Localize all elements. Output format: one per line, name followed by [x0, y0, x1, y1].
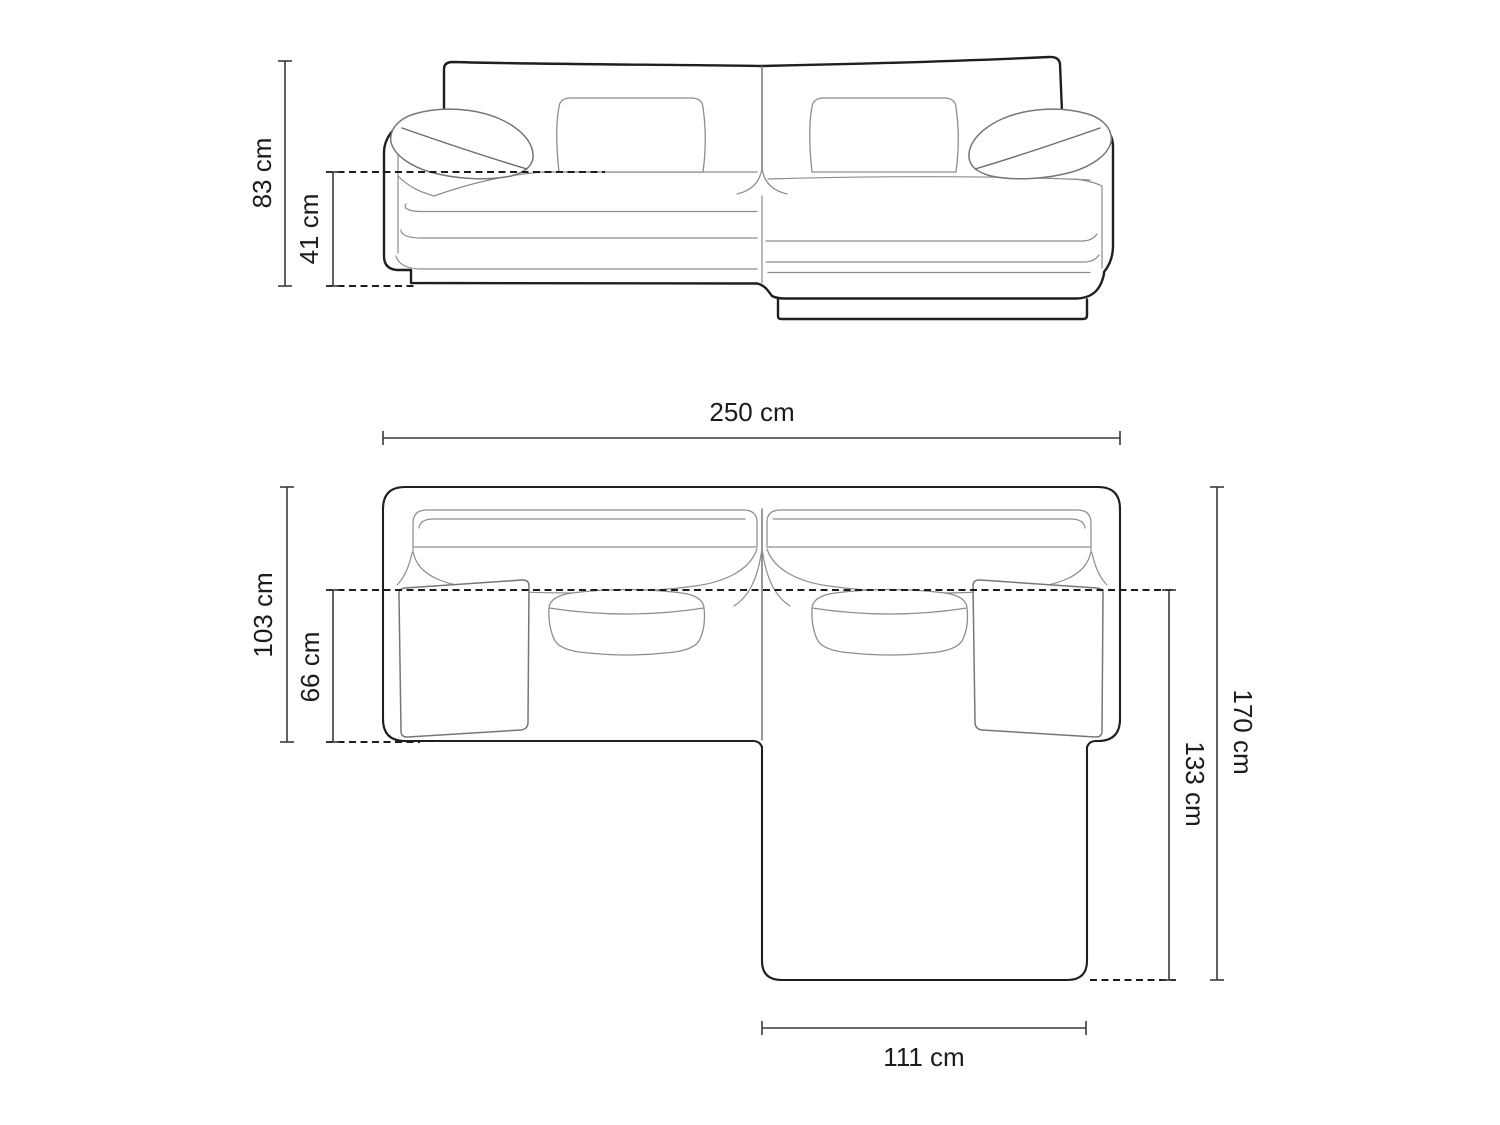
dimension-chaise-depth: 133 cm [1162, 590, 1210, 980]
seat-height-label: 41 cm [294, 194, 324, 265]
top-armrest-pillow-left [399, 580, 529, 737]
dimension-seat-depth: 66 cm [295, 590, 340, 742]
chaise-width-label: 111 cm [883, 1042, 964, 1072]
top-seat-cushions [549, 590, 968, 656]
front-view: 83 cm 41 cm [247, 57, 1113, 319]
front-sofa-outline [384, 57, 1113, 319]
top-sofa-outline [383, 487, 1120, 980]
back-cushion-right [810, 98, 959, 172]
dimension-seat-height: 41 cm [294, 172, 340, 286]
seat-cushion-left [549, 590, 705, 656]
top-view: 250 cm 103 cm 66 cm 170 cm 1 [248, 397, 1258, 1072]
total-depth-label: 170 cm [1228, 689, 1258, 774]
dimension-total-width: 250 cm [383, 397, 1120, 445]
dimension-total-height: 83 cm [247, 61, 292, 286]
chaise-depth-label: 133 cm [1180, 741, 1210, 826]
armrest-pillow-left [391, 109, 533, 179]
seat-cushion-right [812, 590, 968, 656]
dimension-total-depth: 170 cm [1210, 487, 1258, 980]
body-depth-label: 103 cm [248, 572, 278, 657]
back-cushion-left [557, 98, 706, 172]
dimension-chaise-width: 111 cm [762, 1021, 1086, 1072]
front-armrest-pillows [391, 109, 1112, 179]
total-width-label: 250 cm [709, 397, 794, 427]
diagram-canvas: 83 cm 41 cm [0, 0, 1500, 1125]
top-armrest-pillows [399, 580, 1103, 737]
total-height-label: 83 cm [247, 138, 277, 209]
armrest-pillow-right [969, 109, 1111, 179]
dimension-body-depth: 103 cm [248, 487, 294, 742]
top-armrest-pillow-right [973, 580, 1103, 737]
seat-depth-label: 66 cm [295, 632, 325, 703]
sofa-dimensions-diagram: 83 cm 41 cm [0, 0, 1500, 1125]
front-back-cushions [557, 98, 959, 172]
